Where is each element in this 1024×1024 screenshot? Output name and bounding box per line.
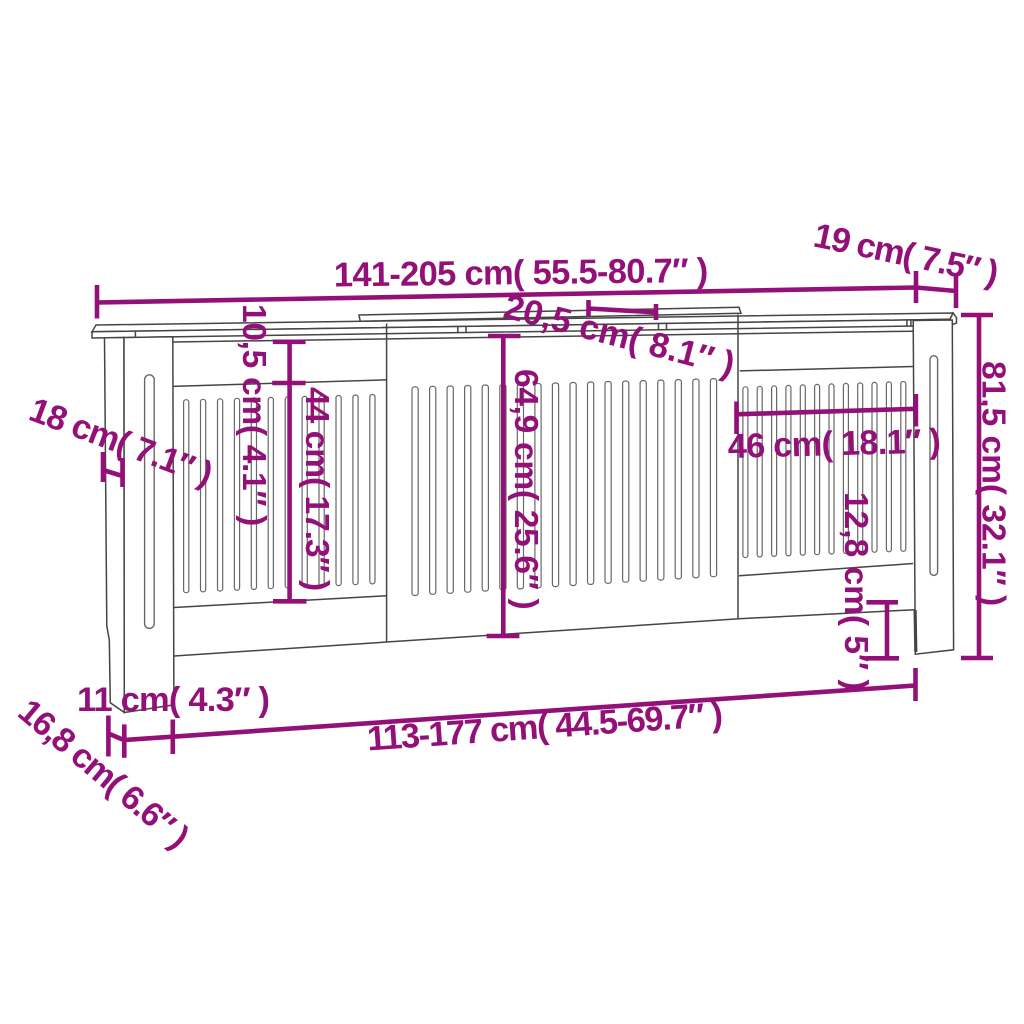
svg-text:44 cm( 17.3″ ): 44 cm( 17.3″ ) bbox=[298, 387, 335, 590]
svg-text:10,5 cm( 4.1″ ): 10,5 cm( 4.1″ ) bbox=[235, 304, 272, 526]
svg-text:141-205 cm( 55.5-80.7″ ): 141-205 cm( 55.5-80.7″ ) bbox=[334, 252, 708, 295]
svg-text:81,5 cm( 32.1″ ): 81,5 cm( 32.1″ ) bbox=[975, 361, 1012, 606]
svg-text:64,9 cm( 25.6″ ): 64,9 cm( 25.6″ ) bbox=[507, 369, 544, 609]
svg-text:12,8 cm( 5″ ): 12,8 cm( 5″ ) bbox=[837, 492, 874, 691]
svg-text:11 cm( 4.3″ ): 11 cm( 4.3″ ) bbox=[77, 681, 269, 719]
svg-text:46 cm( 18.1″ ): 46 cm( 18.1″ ) bbox=[727, 422, 940, 466]
